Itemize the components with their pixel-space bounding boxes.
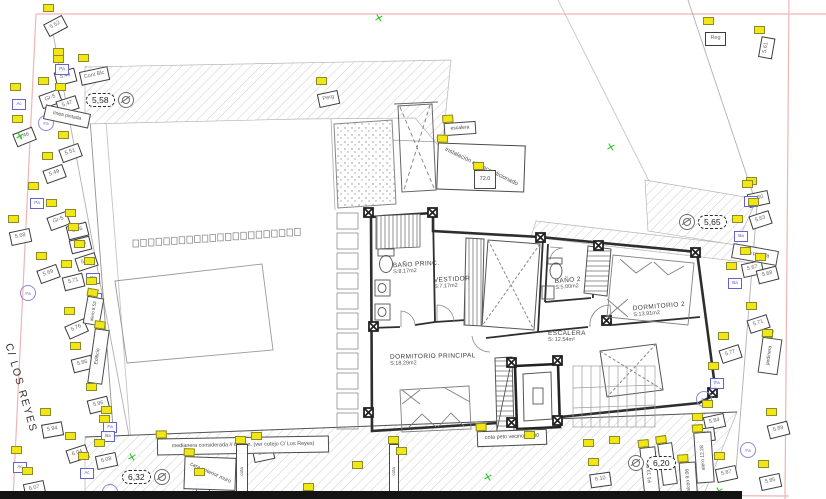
marker-tag (732, 215, 743, 223)
room-area: S:5.00m2 (555, 283, 582, 291)
marker-value: 5.89 (767, 421, 791, 439)
room-area: S:18.29m2 (390, 359, 476, 366)
marker-value: 6.10 (589, 472, 612, 488)
marker-tag (53, 48, 64, 56)
benchmark-value: 5,58 (86, 93, 115, 107)
marker-value: Reg (705, 32, 726, 46)
survey-cross-icon: ✕ (126, 452, 138, 465)
annotation-tag (388, 436, 399, 444)
marker-value: 6.08 (95, 452, 118, 470)
annotation-tag (156, 430, 167, 438)
marker-value: 5.71 (62, 273, 86, 291)
survey-marker-blue: Ac (80, 461, 94, 479)
benchmark-label: 6,20 (628, 455, 676, 471)
survey-cross-icon: ✕ (605, 142, 617, 155)
annotation-text: cota (240, 467, 245, 476)
survey-marker: 5.71 (748, 311, 769, 331)
marker-tag (22, 467, 33, 475)
survey-marker: 5.61 (756, 35, 777, 55)
room-label: VESTIDORS:7.17m2 (434, 275, 471, 290)
marker-tag (746, 302, 757, 310)
marker-value: 5.63 (748, 210, 772, 229)
benchmark-label: 5,58 (86, 92, 134, 108)
survey-marker-blue: Ba (734, 224, 748, 242)
marker-value: 5.52 (43, 15, 68, 37)
marker-tag (588, 458, 599, 466)
marker-tag (86, 383, 97, 391)
marker-tag (78, 54, 89, 62)
marker-tag (28, 182, 39, 190)
annotation-text: línea pintada (52, 111, 81, 122)
room-name: DORMITORIO PRINCIPAL (390, 352, 476, 360)
annotation-tag (677, 454, 689, 463)
benchmark-value: 5,65 (698, 215, 727, 229)
manhole-icon (154, 469, 170, 485)
marker-tag (78, 452, 89, 460)
annotation-tag (475, 423, 486, 431)
annotation-tag (692, 424, 704, 433)
marker-tag (766, 408, 777, 416)
marker-tag (714, 452, 725, 460)
marker-value: 5.87 (715, 465, 738, 483)
annotation-text: cota (392, 467, 397, 476)
marker-tag (65, 432, 76, 440)
marker-value: 5.94 (41, 421, 64, 438)
survey-marker: 5.85 (760, 469, 781, 489)
marker-tag (609, 436, 620, 444)
marker-tag (61, 260, 72, 268)
benchmark-value: 6,32 (122, 470, 151, 484)
survey-marker: 5.52 (45, 13, 66, 33)
annotation-text: Edificio (95, 348, 102, 365)
room-label: BAÑO PRINC.S:8.17m2 (393, 260, 440, 275)
benchmark-label: 5,65 (679, 214, 727, 230)
lamp-post-marker: Fa (740, 442, 756, 458)
marker-tag (702, 400, 713, 408)
annotation-box: escalera (444, 121, 477, 136)
room-label: BAÑO 2S:5.00m2 (554, 276, 581, 291)
manhole-icon (679, 214, 695, 230)
room-label: ESCALERAS: 12.54m² (548, 330, 586, 343)
marker-tag (42, 152, 53, 160)
annotation-text: escalera (450, 125, 469, 132)
annotation-tag (473, 162, 484, 170)
marker-tag (36, 252, 47, 260)
marker-tag (99, 415, 110, 423)
room-label: DORMITORIO PRINCIPALS:18.29m2 (390, 352, 476, 366)
marker-value: 5.68 (9, 228, 32, 246)
survey-marker: Cont Blc (80, 63, 109, 83)
annotation-tag (87, 288, 99, 298)
annotation-box: cota peto vecino 17.00 (477, 429, 548, 447)
marker-tag (70, 342, 81, 350)
marker-tag (101, 406, 112, 414)
survey-marker: 5.71 (63, 269, 84, 289)
survey-marker: 5.94 (42, 417, 63, 437)
annotation-box: jardinera (758, 337, 783, 375)
marker-tag (303, 483, 314, 491)
marker-tag (740, 247, 751, 255)
floor-plan-page: 5.525.48Cont BlcGr-55.475.465.515.49Gr-5… (0, 0, 826, 499)
marker-value: Ac (12, 99, 26, 110)
marker-tag (8, 215, 19, 223)
marker-tag (758, 460, 769, 468)
annotation-box: cara anterior muro (183, 456, 236, 491)
marker-tag (55, 83, 66, 91)
marker-tag (583, 439, 594, 447)
marker-tag (762, 329, 773, 337)
marker-value: 5.61 (758, 36, 775, 59)
annotation-tag (437, 134, 448, 142)
room-area: S:8.17m2 (393, 267, 440, 275)
annotation-tag (94, 320, 106, 329)
marker-tag (40, 408, 51, 416)
annotation-tag (442, 114, 454, 123)
marker-value: 5.68 (756, 266, 780, 284)
marker-value: 5.77 (718, 344, 742, 363)
marker-tag (352, 461, 363, 469)
survey-cross-icon: ✕ (482, 472, 494, 485)
manhole-icon (628, 455, 644, 471)
bottom-black-bar (0, 491, 742, 499)
marker-tag (251, 432, 262, 440)
marker-value: 5.85 (759, 473, 782, 491)
annotation-tag (655, 435, 667, 444)
survey-marker: 5.87 (716, 461, 737, 481)
room-area: S:7.17m2 (434, 282, 471, 290)
marker-tag (396, 447, 407, 455)
marker-tag (755, 253, 766, 261)
marker-value: Cont Blc (79, 66, 110, 85)
marker-value: 5.49 (42, 164, 66, 184)
marker-tag (194, 468, 205, 476)
annotation-text: alero 8.53 (89, 301, 97, 322)
survey-marker: 5.69 (38, 261, 59, 281)
survey-marker: 5.68 (10, 224, 31, 244)
marker-tag (74, 240, 85, 248)
survey-marker-blue: Fa (710, 371, 724, 389)
marker-value: Ac (80, 468, 94, 479)
marker-value: 5.51 (58, 143, 82, 163)
marker-tag (38, 77, 49, 85)
marker-value: Fa (710, 378, 724, 389)
marker-tag (53, 55, 64, 63)
survey-marker-blue: Pa (30, 191, 44, 209)
survey-cross-icon: ✕ (373, 13, 385, 26)
marker-tag (742, 180, 753, 188)
annotation-tag (184, 448, 195, 456)
annotation-box: 72.0 (474, 170, 496, 189)
annotation-text: jardinera (766, 346, 774, 366)
marker-tag (43, 4, 54, 12)
marker-tag (46, 199, 57, 207)
marker-tag (524, 431, 535, 439)
marker-tag (11, 446, 22, 454)
room-area: S: 12.54m² (548, 337, 586, 343)
overlay-layer: 5.525.48Cont BlcGr-55.475.465.515.49Gr-5… (0, 0, 826, 499)
room-label: DORMITORIO 2S:13.91m2 (633, 301, 686, 319)
survey-marker-blue: Ba (728, 271, 742, 289)
marker-value: Perg (317, 90, 340, 108)
marker-tag (65, 209, 76, 217)
survey-marker: 6.08 (96, 448, 117, 468)
survey-marker: 5.77 (720, 341, 741, 361)
marker-value: Pa (30, 198, 44, 209)
survey-marker: Perg (318, 86, 339, 106)
survey-marker: 5.63 (750, 207, 771, 227)
marker-tag (10, 83, 21, 91)
room-name: ESCALERA (548, 330, 586, 337)
marker-tag (84, 257, 95, 265)
marker-tag (754, 26, 765, 34)
marker-tag (718, 332, 729, 340)
marker-value: 5.69 (36, 264, 60, 284)
marker-tag (703, 17, 714, 25)
marker-tag (68, 223, 79, 231)
lamp-post-marker: Fa (20, 285, 36, 301)
marker-value: Ba (728, 278, 742, 289)
survey-marker: 6.10 (590, 467, 611, 487)
marker-tag (316, 77, 327, 85)
marker-value: Ba (734, 231, 748, 242)
annotation-text: 72.0 (480, 177, 491, 183)
marker-tag (58, 131, 69, 139)
benchmark-label: 6,32 (122, 469, 170, 485)
marker-tag (692, 413, 703, 421)
marker-tag (12, 115, 23, 123)
survey-marker-blue: Ac (12, 92, 26, 110)
marker-tag (726, 262, 737, 270)
survey-marker: 5.49 (44, 161, 65, 181)
marker-tag (64, 307, 75, 315)
annotation-tag (637, 439, 649, 448)
marker-tag (86, 277, 97, 285)
benchmark-value: 6,20 (647, 456, 676, 470)
survey-marker: 5.89 (768, 417, 789, 437)
marker-tag (708, 362, 719, 370)
marker-tag (94, 439, 105, 447)
marker-value: Pa (55, 64, 69, 75)
annotation-text: alero 12.28 (701, 445, 708, 470)
annotation-box: Edificio (87, 328, 110, 385)
manhole-icon (118, 92, 134, 108)
annotation-tag (235, 436, 246, 444)
survey-marker: 5.51 (60, 140, 81, 160)
survey-marker: Reg (705, 26, 726, 46)
marker-tag (748, 198, 759, 206)
